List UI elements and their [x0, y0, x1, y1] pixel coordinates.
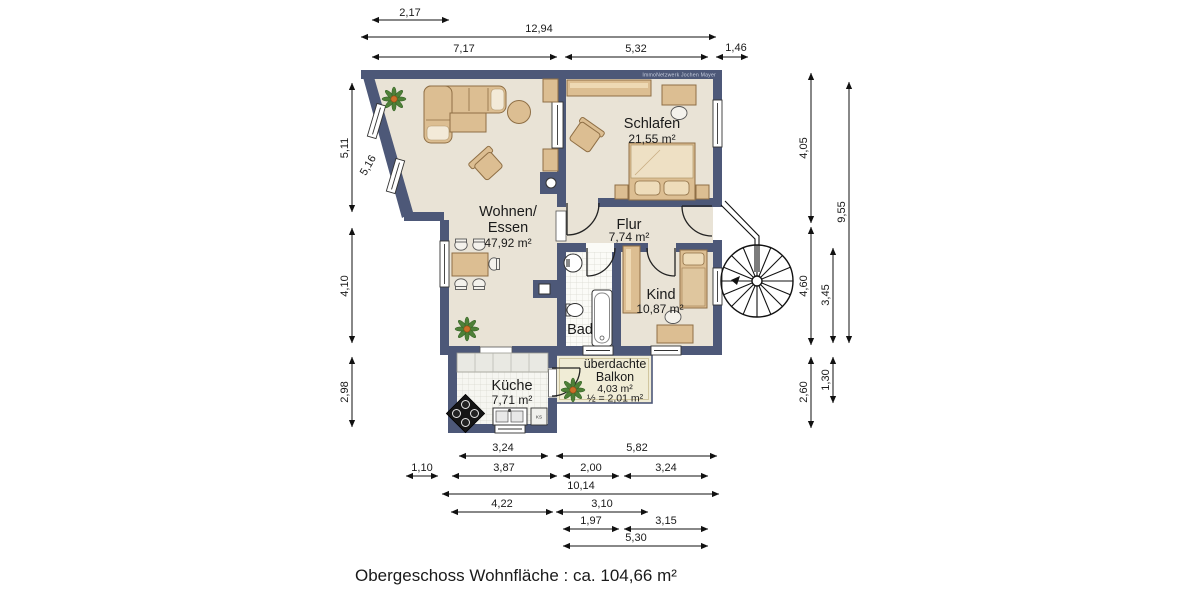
- dim: 3,45: [820, 248, 833, 343]
- dim-label: 12,94: [525, 23, 553, 35]
- kitchen-counter-top: [457, 353, 548, 372]
- stair-railing: [725, 201, 759, 272]
- label-schlafen: Schlafen: [624, 116, 680, 132]
- dim-label: 3,24: [655, 462, 676, 474]
- floor-summary: Obergeschoss Wohnfläche : ca. 104,66 m²: [355, 566, 677, 585]
- dim-label: 4,60: [798, 275, 810, 296]
- dim-label: 2,60: [798, 381, 810, 402]
- bathtub: [592, 290, 612, 346]
- nightstand-right: [696, 185, 709, 199]
- dim-label: 4,22: [491, 498, 512, 510]
- dim: 3,87: [452, 462, 557, 476]
- toilet: [567, 304, 583, 317]
- dining-chair: [489, 258, 500, 270]
- dim-label: 10,14: [567, 480, 595, 492]
- floorplan-drawing: KS ImmoNetzwerk Jochen Mayer Wohnen/ Ess…: [0, 0, 1200, 600]
- area-flur: 7,74 m²: [609, 230, 650, 244]
- dimensions-bottom: 3,24 5,82 1,10 3,87 2,00 3,24 10,14 4,22…: [406, 442, 719, 546]
- area-schlafen: 21,55 m²: [628, 132, 675, 146]
- sink-tap: [566, 259, 570, 267]
- label-kind: Kind: [646, 287, 675, 303]
- label-balkon-2: Balkon: [596, 370, 634, 384]
- dim: 9,55: [836, 82, 849, 343]
- dining-chair: [473, 279, 485, 290]
- dim: 1,97: [563, 515, 619, 529]
- dim-label: 2,98: [339, 381, 351, 402]
- single-bed: [680, 250, 707, 308]
- dim: 2,60: [798, 357, 811, 428]
- dim: 12,94: [361, 23, 716, 37]
- kitchen-sink: [493, 408, 527, 425]
- chimney-lower: [533, 280, 557, 298]
- dim-label: 3,87: [493, 462, 514, 474]
- dimensions-right: 4,05 9,55 4,60 3,45 2,60 1,30: [798, 73, 849, 428]
- dim: 2,00: [563, 462, 619, 476]
- dim-label: 5,30: [625, 532, 646, 544]
- dim-label: 3,24: [492, 442, 513, 454]
- dim-label: 5,32: [625, 43, 646, 55]
- label-balkon-1: überdachte: [584, 357, 647, 371]
- dim-label: 1,46: [725, 42, 746, 54]
- dim-label: 4,05: [798, 137, 810, 158]
- area-kind: 10,87 m²: [636, 302, 683, 316]
- dim: 3,24: [624, 462, 708, 476]
- dining-chair: [455, 239, 467, 250]
- dim: 4,10: [339, 228, 352, 343]
- dim-label: 5,82: [626, 442, 647, 454]
- dim-label: 3,45: [820, 284, 832, 305]
- label-bad: Bad: [567, 322, 593, 338]
- threshold-balcony: [549, 369, 557, 397]
- label-kueche: Küche: [491, 378, 532, 394]
- plant-top: [382, 87, 406, 111]
- dim: 5,11: [339, 83, 352, 212]
- dim: 1,10: [406, 462, 438, 476]
- dim: 3,15: [624, 515, 708, 529]
- dim: 2,98: [339, 357, 352, 427]
- dim-label: 3,10: [591, 498, 612, 510]
- desk-bedroom: [662, 85, 696, 105]
- dim-label: 1,10: [411, 462, 432, 474]
- dimensions-top: 2,17 12,94 7,17 5,32 1,46: [361, 7, 748, 57]
- round-table: [508, 101, 531, 124]
- dim: 4,22: [451, 498, 553, 512]
- dim-label: 9,55: [836, 201, 848, 222]
- nightstand-left: [615, 185, 628, 199]
- fridge-label: KS: [536, 415, 542, 420]
- threshold-living-hall: [556, 211, 566, 241]
- desk-child: [657, 325, 693, 343]
- dim-label: 2,17: [399, 7, 420, 19]
- coffee-table: [450, 113, 486, 132]
- dim: 10,14: [442, 480, 719, 494]
- dim: 3,10: [556, 498, 648, 512]
- dim: 4,05: [798, 73, 811, 223]
- dim-label: 5,11: [339, 138, 351, 159]
- watermark: ImmoNetzwerk Jochen Mayer: [642, 73, 716, 79]
- dim: 1,46: [716, 42, 748, 57]
- dim-label: 3,15: [655, 515, 676, 527]
- dim: 5,32: [565, 43, 708, 57]
- dim: 5,30: [563, 532, 708, 546]
- spiral-staircase: [721, 201, 793, 317]
- floorplan-page: KS ImmoNetzwerk Jochen Mayer Wohnen/ Ess…: [0, 0, 1200, 600]
- dim: 7,17: [372, 43, 557, 57]
- dim: 5,82: [556, 442, 717, 456]
- plant-living: [455, 317, 479, 341]
- dim: 4,60: [798, 227, 811, 345]
- dim-label: 1,97: [580, 515, 601, 527]
- dim: 2,17: [372, 7, 449, 20]
- area-balkon-half: ½ = 2,01 m²: [587, 393, 644, 405]
- dining-chair: [455, 279, 467, 290]
- dim-label-diagonal: 5,16: [358, 153, 379, 178]
- label-wohnen: Wohnen/: [479, 204, 538, 220]
- dim: 3,24: [459, 442, 548, 456]
- dim: 1,30: [820, 357, 833, 403]
- dim-label: 4,10: [339, 275, 351, 296]
- dim-label: 2,00: [580, 462, 601, 474]
- area-wohnen: 47,92 m²: [484, 236, 531, 250]
- dim-label: 7,17: [453, 43, 474, 55]
- area-kueche: 7,71 m²: [492, 393, 533, 407]
- double-bed: [629, 143, 695, 200]
- label-essen: Essen: [488, 220, 528, 236]
- dim-label: 1,30: [820, 369, 832, 390]
- plant-balcony: [561, 378, 585, 402]
- fridge: KS: [531, 408, 547, 425]
